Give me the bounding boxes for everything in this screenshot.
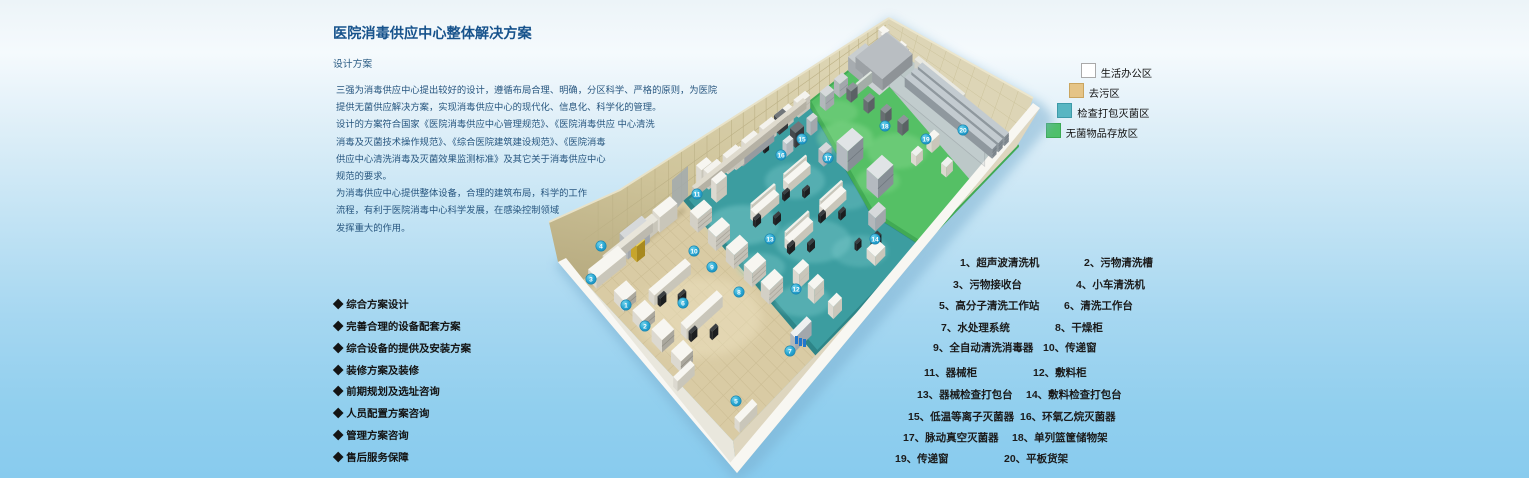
svg-text:19: 19 [922,136,930,143]
svg-text:7: 7 [788,348,792,355]
svg-text:1: 1 [624,302,628,309]
svg-text:20: 20 [959,127,967,134]
svg-text:10: 10 [690,248,698,255]
svg-text:6: 6 [681,300,685,307]
svg-text:18: 18 [881,123,889,130]
svg-text:5: 5 [734,398,738,405]
svg-text:14: 14 [871,236,879,243]
svg-text:8: 8 [737,289,741,296]
svg-text:4: 4 [599,243,603,250]
svg-text:16: 16 [777,152,785,159]
svg-text:11: 11 [694,191,701,198]
svg-text:15: 15 [798,136,806,143]
svg-text:9: 9 [710,264,714,271]
svg-text:3: 3 [589,276,593,283]
svg-text:12: 12 [792,286,800,293]
svg-text:17: 17 [824,155,832,162]
svg-text:2: 2 [643,323,647,330]
svg-text:13: 13 [766,236,774,243]
